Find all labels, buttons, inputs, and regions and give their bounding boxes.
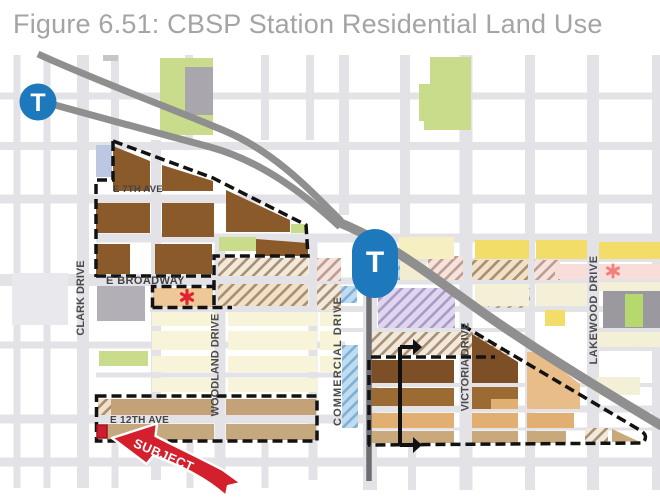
- svg-text:COMMERCIAL DRIVE: COMMERCIAL DRIVE: [332, 296, 344, 426]
- svg-text:CLARK DRIVE: CLARK DRIVE: [75, 260, 87, 335]
- svg-text:E 7TH AVE: E 7TH AVE: [113, 184, 163, 195]
- svg-text:VICTORIA DRIVE: VICTORIA DRIVE: [460, 323, 472, 412]
- svg-text:E 12TH AVE: E 12TH AVE: [110, 415, 169, 426]
- svg-text:T: T: [366, 246, 384, 279]
- svg-text:T: T: [30, 89, 45, 117]
- svg-text:Figure 6.51: CBSP Station Resi: Figure 6.51: CBSP Station Residential La…: [13, 9, 603, 39]
- svg-text:LAKEWOOD DRIVE: LAKEWOOD DRIVE: [588, 255, 600, 364]
- svg-text:WOODLAND DRIVE: WOODLAND DRIVE: [210, 314, 222, 417]
- svg-text:E BROADWAY: E BROADWAY: [106, 275, 185, 287]
